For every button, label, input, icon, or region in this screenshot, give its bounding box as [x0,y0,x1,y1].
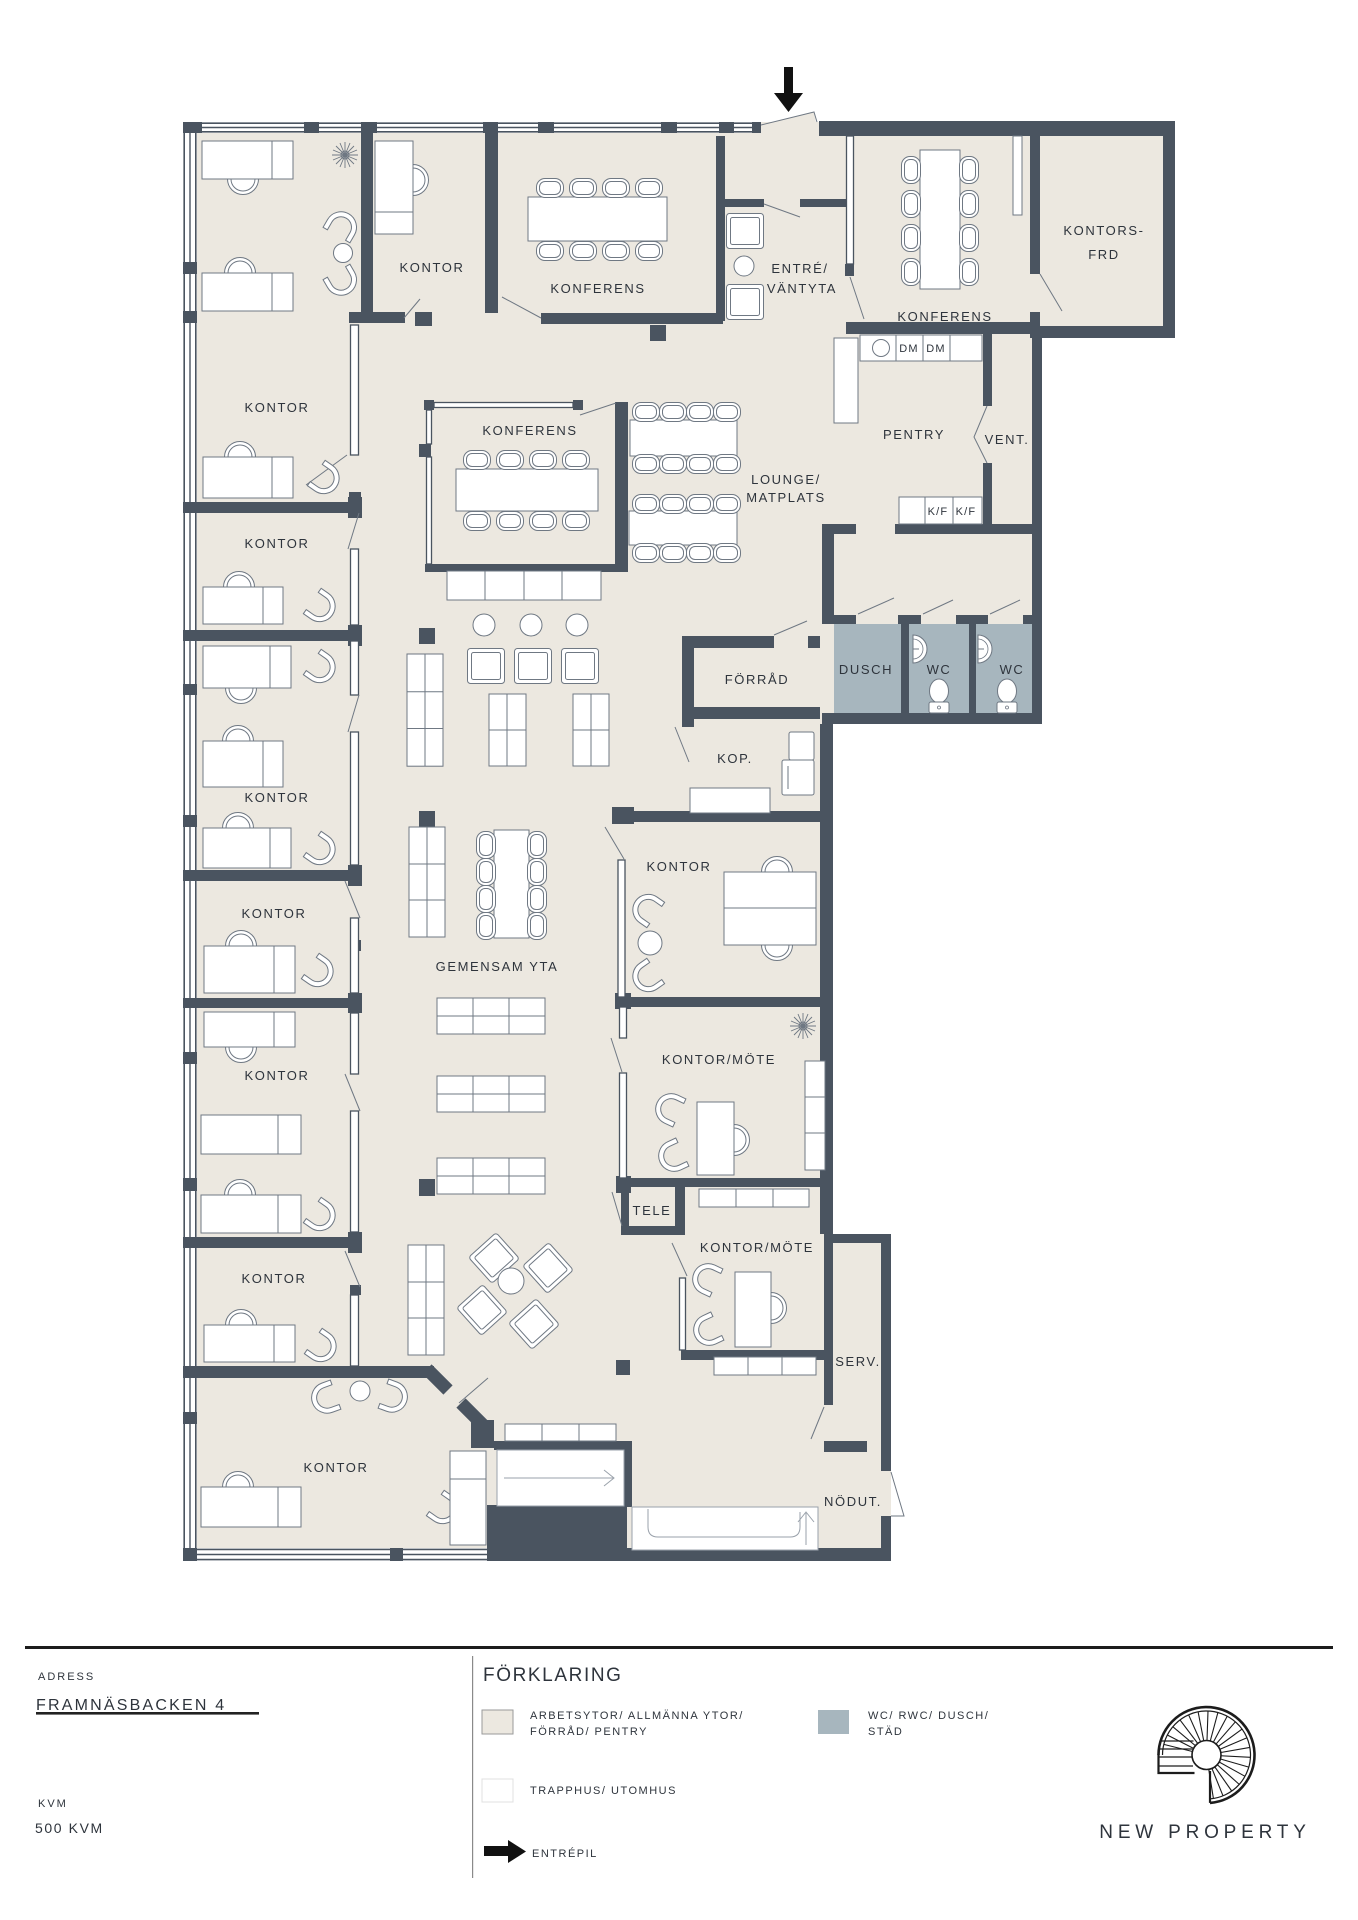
svg-text:KONTOR/MÖTE: KONTOR/MÖTE [700,1240,814,1255]
svg-text:TELE: TELE [633,1203,672,1218]
svg-text:500 KVM: 500 KVM [35,1820,104,1836]
svg-text:ENTRÉ/: ENTRÉ/ [771,261,828,276]
svg-text:KONFERENS: KONFERENS [897,309,992,324]
svg-text:FRAMNÄSBACKEN 4: FRAMNÄSBACKEN 4 [36,1696,226,1714]
svg-text:LOUNGE/: LOUNGE/ [751,472,821,487]
svg-text:STÄD: STÄD [868,1726,903,1738]
svg-text:ARBETSYTOR/ ALLMÄNNA YTOR/: ARBETSYTOR/ ALLMÄNNA YTOR/ [530,1710,744,1722]
svg-text:KOP.: KOP. [717,751,753,766]
svg-text:MATPLATS: MATPLATS [746,490,826,505]
svg-text:WC: WC [1000,662,1025,677]
svg-text:TRAPPHUS/ UTOMHUS: TRAPPHUS/ UTOMHUS [530,1785,677,1797]
svg-text:WC/ RWC/ DUSCH/: WC/ RWC/ DUSCH/ [868,1710,989,1722]
svg-text:KONTOR: KONTOR [242,1271,307,1286]
svg-text:KONTORS-: KONTORS- [1063,223,1144,238]
svg-text:NEW PROPERTY: NEW PROPERTY [1099,1822,1310,1843]
svg-text:FÖRRÅD: FÖRRÅD [725,672,790,687]
svg-text:KONTOR: KONTOR [245,536,310,551]
svg-text:DM: DM [899,343,919,355]
svg-text:KONTOR: KONTOR [245,400,310,415]
svg-text:K/F: K/F [928,506,949,518]
svg-text:KONFERENS: KONFERENS [482,423,577,438]
svg-text:SERV.: SERV. [835,1354,881,1369]
svg-text:KONFERENS: KONFERENS [550,281,645,296]
svg-text:VÄNTYTA: VÄNTYTA [767,281,837,296]
svg-text:ADRESS: ADRESS [38,1671,95,1683]
svg-text:DM: DM [926,343,946,355]
svg-text:KONTOR/MÖTE: KONTOR/MÖTE [662,1052,776,1067]
svg-text:FÖRKLARING: FÖRKLARING [483,1665,623,1686]
svg-text:NÖDUT.: NÖDUT. [824,1494,882,1509]
svg-text:ENTRÉPIL: ENTRÉPIL [532,1847,598,1860]
svg-text:FÖRRÅD/ PENTRY: FÖRRÅD/ PENTRY [530,1725,648,1738]
svg-text:K/F: K/F [956,506,977,518]
svg-text:KONTOR: KONTOR [400,260,465,275]
svg-text:KONTOR: KONTOR [242,906,307,921]
svg-text:VENT.: VENT. [985,432,1030,447]
svg-text:KONTOR: KONTOR [304,1460,369,1475]
svg-text:PENTRY: PENTRY [883,427,945,442]
svg-text:DUSCH: DUSCH [839,662,893,677]
svg-text:GEMENSAM YTA: GEMENSAM YTA [436,959,559,974]
svg-text:WC: WC [927,662,952,677]
svg-text:KONTOR: KONTOR [245,1068,310,1083]
svg-text:FRD: FRD [1088,247,1120,262]
svg-text:KVM: KVM [38,1798,68,1810]
svg-text:KONTOR: KONTOR [245,790,310,805]
svg-text:KONTOR: KONTOR [647,859,712,874]
